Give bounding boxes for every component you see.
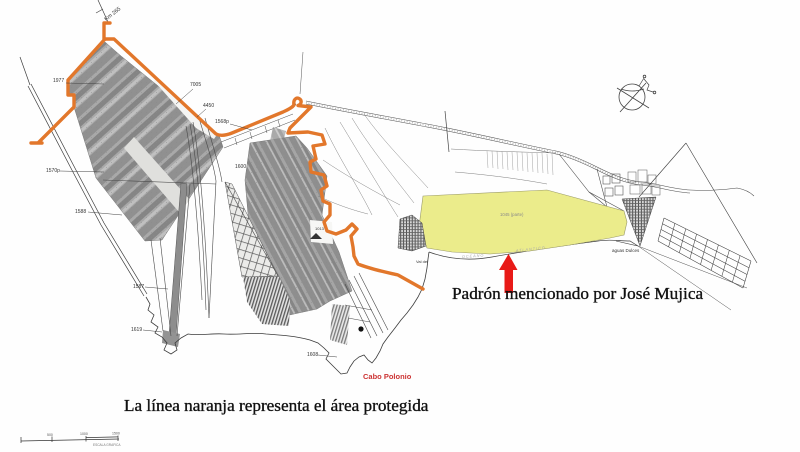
- svg-text:1500: 1500: [112, 432, 120, 436]
- svg-text:La línea naranja representa el: La línea naranja representa el área prot…: [124, 396, 429, 415]
- svg-text:Val del: Val del: [416, 259, 428, 264]
- svg-text:aguas Dulces: aguas Dulces: [612, 248, 640, 253]
- svg-text:1568p: 1568p: [215, 119, 229, 125]
- svg-text:1977: 1977: [53, 78, 64, 84]
- svg-text:Cabo Polonio: Cabo Polonio: [363, 372, 412, 381]
- svg-text:1000: 1000: [80, 432, 88, 436]
- svg-text:1570p: 1570p: [46, 168, 60, 174]
- svg-text:Padrón mencionado por José Muj: Padrón mencionado por José Mujica: [452, 284, 703, 303]
- svg-text:1045 (parte): 1045 (parte): [500, 212, 524, 217]
- svg-text:4450: 4450: [203, 103, 214, 109]
- svg-text:1608: 1608: [307, 352, 318, 358]
- svg-text:1013: 1013: [315, 226, 325, 231]
- svg-text:1619: 1619: [131, 327, 142, 333]
- svg-text:ESCALA GRAFICA: ESCALA GRAFICA: [93, 443, 121, 447]
- svg-text:1600: 1600: [235, 164, 246, 170]
- svg-text:7005: 7005: [190, 82, 201, 88]
- svg-text:1588: 1588: [75, 209, 86, 215]
- svg-text:500: 500: [47, 433, 53, 437]
- svg-text:1587: 1587: [133, 284, 144, 290]
